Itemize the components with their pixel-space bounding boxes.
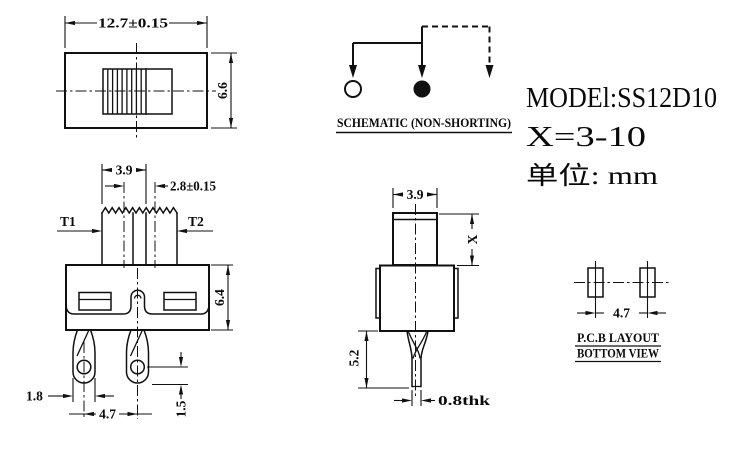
dimension-text-width: 12.7±0.15 xyxy=(98,16,168,31)
terminal-slot xyxy=(79,293,111,311)
arrowhead xyxy=(229,118,233,128)
arrowhead xyxy=(226,320,230,330)
dimension-text-knob-width: 3.9 xyxy=(407,187,424,202)
leg-outline xyxy=(407,331,428,387)
technical-drawing: 12.7±0.15 6.6 3.9 2.8±0.15 T1 T2 xyxy=(0,0,750,450)
dimension-text-leg-pitch: 4.7 xyxy=(99,407,116,422)
terminal-slot xyxy=(164,293,196,311)
arrowhead xyxy=(486,65,494,78)
arrowhead xyxy=(65,21,75,25)
arrowhead xyxy=(418,65,426,78)
dimension-text-travel: 2.8±0.15 xyxy=(170,179,216,194)
leg-fold-edge xyxy=(131,331,143,356)
schematic-view: SCHEMATIC (NON-SHORTING) xyxy=(336,27,512,133)
arrowhead xyxy=(102,168,112,172)
arrowhead xyxy=(226,265,230,275)
pcb-caption-line2: BOTTOM VIEW xyxy=(577,346,659,361)
arrowhead xyxy=(128,412,138,416)
terminal-label-t2: T2 xyxy=(188,214,204,229)
dimension-text-height: 6.6 xyxy=(215,82,230,99)
arrowhead xyxy=(179,385,183,395)
mounting-flange xyxy=(376,269,380,319)
arrowhead xyxy=(197,21,207,25)
dimension-text-pad-pitch: 4.7 xyxy=(613,306,630,321)
front-view: 3.9 2.8±0.15 T1 T2 6.4 xyxy=(26,162,233,421)
arrowhead xyxy=(402,398,412,402)
terminal-label-t1: T1 xyxy=(60,214,76,229)
leg-fold-edge xyxy=(77,331,89,356)
top-view: 12.7±0.15 6.6 xyxy=(56,16,237,140)
arrowhead xyxy=(229,53,233,63)
dimension-text-body-height: 6.4 xyxy=(212,289,227,306)
dimension-text-hole-to-tip: 1.5 xyxy=(174,400,189,417)
dimension-text-leg-width: 1.8 xyxy=(26,389,43,404)
pcb-caption-line1: P.C.B LAYOUT xyxy=(577,330,659,345)
arrowhead xyxy=(155,184,165,188)
arrowhead xyxy=(136,168,146,172)
knob-serrated-top xyxy=(102,208,177,213)
pcb-layout-view: 4.7 P.C.B LAYOUT BOTTOM VIEW xyxy=(574,261,669,362)
side-view: 3.9 X 5.2 0.8thk xyxy=(347,187,491,408)
dimension-text-knob-width: 3.9 xyxy=(116,162,133,177)
arrowhead xyxy=(84,412,94,416)
arrowhead xyxy=(349,65,357,78)
arrowhead xyxy=(63,394,73,398)
arrowhead xyxy=(364,378,368,388)
arrowhead xyxy=(586,311,596,315)
arrowhead xyxy=(470,214,474,224)
arrowhead xyxy=(427,192,437,196)
dimension-text-knob-height: X xyxy=(465,234,480,244)
common-contact-circle xyxy=(414,81,431,98)
arrowhead xyxy=(179,357,183,367)
arrowhead xyxy=(95,394,105,398)
switch-body-outline xyxy=(380,266,454,332)
dimension-text-leg-length: 5.2 xyxy=(347,349,362,366)
units-text: 单位: mm xyxy=(526,162,659,190)
arrowhead xyxy=(364,331,368,341)
mounting-flange xyxy=(454,269,458,319)
dimension-text-leg-thickness: 0.8thk xyxy=(438,393,491,408)
x-range-text: X=3-10 xyxy=(526,122,646,153)
drawing-sheet: 12.7±0.15 6.6 3.9 2.8±0.15 T1 T2 xyxy=(0,0,750,450)
arrowhead xyxy=(470,256,474,266)
open-contact-circle xyxy=(345,81,361,97)
arrowhead xyxy=(393,192,403,196)
arrowhead xyxy=(92,229,102,233)
title-block: MODEl:SS12D10 X=3-10 单位: mm xyxy=(526,83,717,190)
arrowhead xyxy=(177,229,187,233)
model-number-text: MODEl:SS12D10 xyxy=(526,83,717,114)
arrowhead xyxy=(648,311,658,315)
schematic-caption: SCHEMATIC (NON-SHORTING) xyxy=(337,115,511,130)
arrowhead xyxy=(421,398,431,402)
arrowhead xyxy=(114,184,124,188)
